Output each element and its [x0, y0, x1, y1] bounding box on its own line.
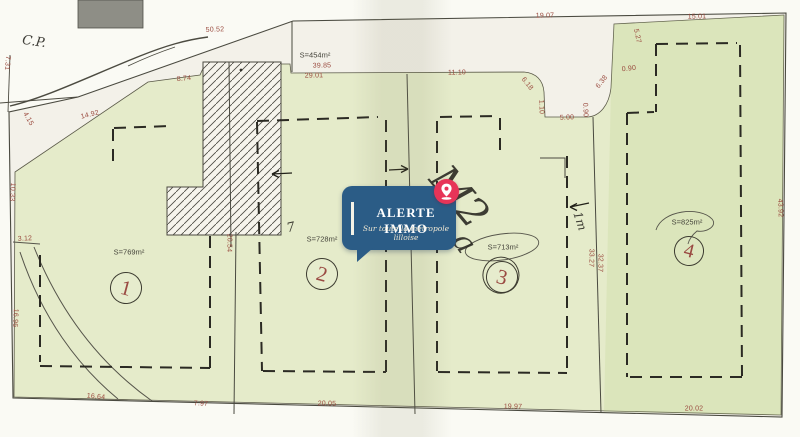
green-area-right-shade [604, 15, 784, 415]
badge-tail [357, 248, 373, 262]
survey-point-dot [240, 69, 243, 72]
location-pin-icon [434, 179, 459, 204]
scanned-land-plan: 50.527.314.1514.928.7410.333.1216.9620.5… [0, 0, 800, 437]
watermark-badge: ALERTE IMMO Sur toute la métropole lillo… [342, 186, 456, 250]
watermark-tagline: Sur toute la métropole lilloise [356, 224, 456, 242]
badge-accent-bar [351, 202, 354, 235]
building-footprint [78, 0, 143, 28]
location-pin-glyph [434, 179, 459, 204]
